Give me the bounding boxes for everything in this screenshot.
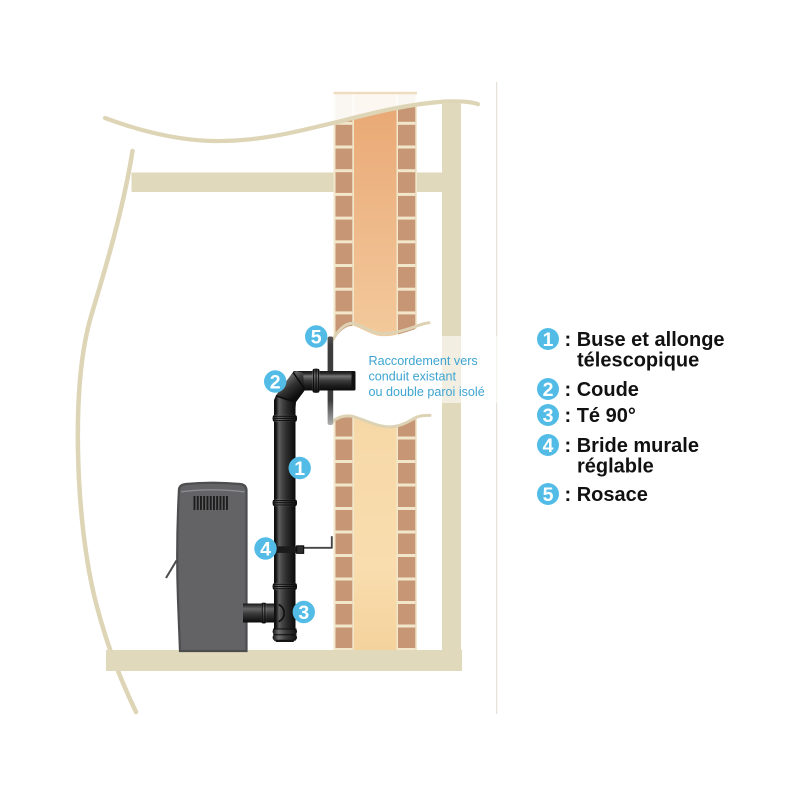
svg-text:réglable: réglable	[577, 456, 654, 478]
svg-text:conduit existant: conduit existant	[369, 369, 457, 383]
svg-text:Raccordement vers: Raccordement vers	[369, 354, 478, 368]
svg-text:1: 1	[543, 329, 554, 351]
svg-text:télescopique: télescopique	[577, 350, 699, 372]
svg-text:: Buse et allonge: : Buse et allonge	[565, 329, 725, 351]
svg-text:3: 3	[298, 602, 309, 624]
svg-text:4: 4	[260, 539, 271, 561]
svg-text:3: 3	[543, 405, 554, 427]
svg-text:: Rosace: : Rosace	[565, 484, 648, 506]
svg-text:4: 4	[543, 435, 554, 457]
svg-text:: Bride murale: : Bride murale	[565, 435, 699, 457]
svg-text:: Coude: : Coude	[565, 379, 639, 401]
svg-text:ou double paroi isolé: ou double paroi isolé	[369, 385, 485, 399]
svg-text:2: 2	[270, 372, 281, 394]
svg-text:5: 5	[311, 327, 322, 349]
svg-text:5: 5	[543, 484, 554, 506]
svg-text:: Té 90°: : Té 90°	[565, 405, 636, 427]
svg-text:2: 2	[543, 379, 554, 401]
svg-text:1: 1	[294, 458, 305, 480]
